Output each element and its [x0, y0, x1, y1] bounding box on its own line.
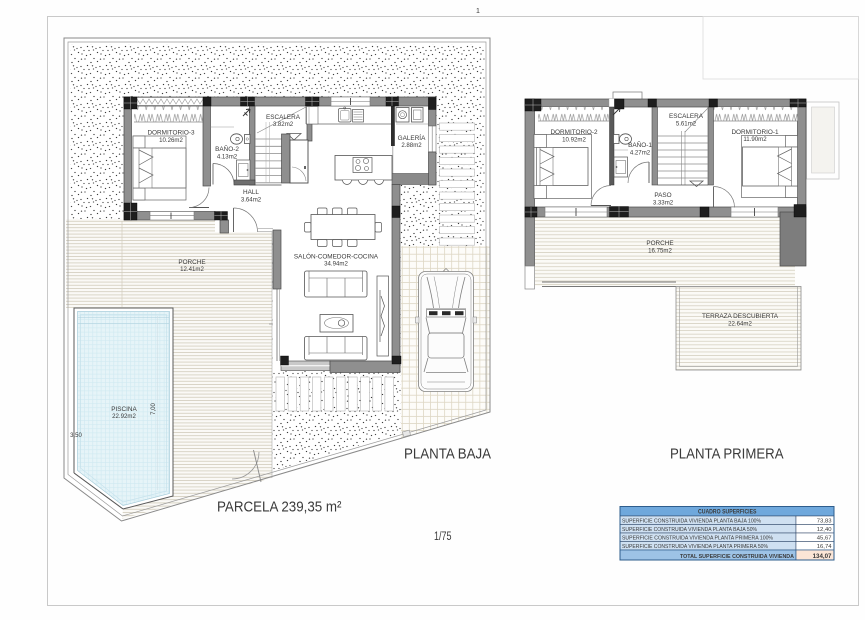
svg-text:34.94m2: 34.94m2: [324, 261, 348, 268]
svg-text:PLANTA BAJA: PLANTA BAJA: [404, 445, 492, 462]
svg-text:22.64m2: 22.64m2: [728, 321, 752, 328]
svg-text:PORCHE: PORCHE: [646, 240, 673, 247]
svg-text:4.13m2: 4.13m2: [217, 154, 238, 161]
svg-text:CUADRO SUPERFICIES: CUADRO SUPERFICIES: [698, 509, 757, 515]
svg-text:BAÑO-1: BAÑO-1: [628, 140, 652, 149]
svg-text:3,50: 3,50: [70, 433, 82, 439]
svg-text:2.88m2: 2.88m2: [401, 142, 422, 149]
svg-text:1/75: 1/75: [434, 531, 452, 543]
svg-text:4.27m2: 4.27m2: [630, 150, 651, 157]
svg-text:16.75m2: 16.75m2: [648, 248, 672, 255]
svg-text:DORMITORIO-2: DORMITORIO-2: [550, 129, 598, 136]
svg-text:10.92m2: 10.92m2: [562, 137, 586, 144]
svg-text:ESCALERA: ESCALERA: [669, 113, 704, 120]
svg-text:PORCHE: PORCHE: [178, 259, 205, 266]
svg-text:DORMITORIO-3: DORMITORIO-3: [147, 130, 195, 137]
svg-text:DORMITORIO-1: DORMITORIO-1: [731, 129, 779, 136]
svg-text:22.92m2: 22.92m2: [112, 413, 136, 420]
svg-text:SUPERFICIE CONSTRUIDA VIVIENDA: SUPERFICIE CONSTRUIDA VIVIENDA PLANTA PR…: [622, 544, 768, 550]
svg-text:73,83: 73,83: [817, 519, 832, 525]
svg-text:GALERÍA: GALERÍA: [398, 133, 426, 142]
svg-text:SUPERFICIE CONSTRUIDA VIVIENDA: SUPERFICIE CONSTRUIDA VIVIENDA PLANTA PR…: [622, 536, 773, 542]
svg-text:12.41m2: 12.41m2: [180, 266, 204, 273]
svg-text:PASO: PASO: [654, 192, 671, 199]
svg-text:3.33m2: 3.33m2: [653, 200, 674, 207]
svg-text:134,07: 134,07: [813, 553, 832, 560]
svg-text:3.64m2: 3.64m2: [241, 197, 262, 204]
svg-text:12,40: 12,40: [817, 527, 832, 533]
svg-text:7,00: 7,00: [151, 403, 157, 415]
svg-text:16,74: 16,74: [817, 544, 832, 550]
svg-text:BAÑO-2: BAÑO-2: [215, 144, 239, 153]
svg-text:SALÓN-COMEDOR-COCINA: SALÓN-COMEDOR-COCINA: [294, 252, 379, 261]
svg-text:SUPERFICIE CONSTRUIDA VIVIENDA: SUPERFICIE CONSTRUIDA VIVIENDA PLANTA BA…: [622, 519, 761, 525]
svg-text:11.90m2: 11.90m2: [743, 136, 767, 143]
svg-text:1: 1: [476, 8, 480, 15]
svg-text:45,67: 45,67: [817, 536, 832, 542]
svg-text:TOTAL SUPERFICIE CONSTRUIDA VI: TOTAL SUPERFICIE CONSTRUIDA VIVIENDA: [680, 554, 795, 560]
svg-text:10.26m2: 10.26m2: [159, 137, 183, 144]
svg-text:3.82m2: 3.82m2: [273, 121, 294, 128]
svg-text:SUPERFICIE CONSTRUIDA VIVIENDA: SUPERFICIE CONSTRUIDA VIVIENDA PLANTA BA…: [622, 527, 757, 533]
svg-text:ESCALERA: ESCALERA: [266, 114, 301, 121]
svg-text:TERRAZA DESCUBIERTA: TERRAZA DESCUBIERTA: [702, 313, 779, 320]
svg-text:PISCINA: PISCINA: [111, 406, 137, 413]
svg-text:PARCELA 239,35 m²: PARCELA 239,35 m²: [217, 499, 342, 516]
svg-text:HALL: HALL: [243, 189, 259, 196]
svg-text:PLANTA PRIMERA: PLANTA PRIMERA: [670, 445, 784, 462]
svg-text:5.61m2: 5.61m2: [676, 121, 697, 128]
